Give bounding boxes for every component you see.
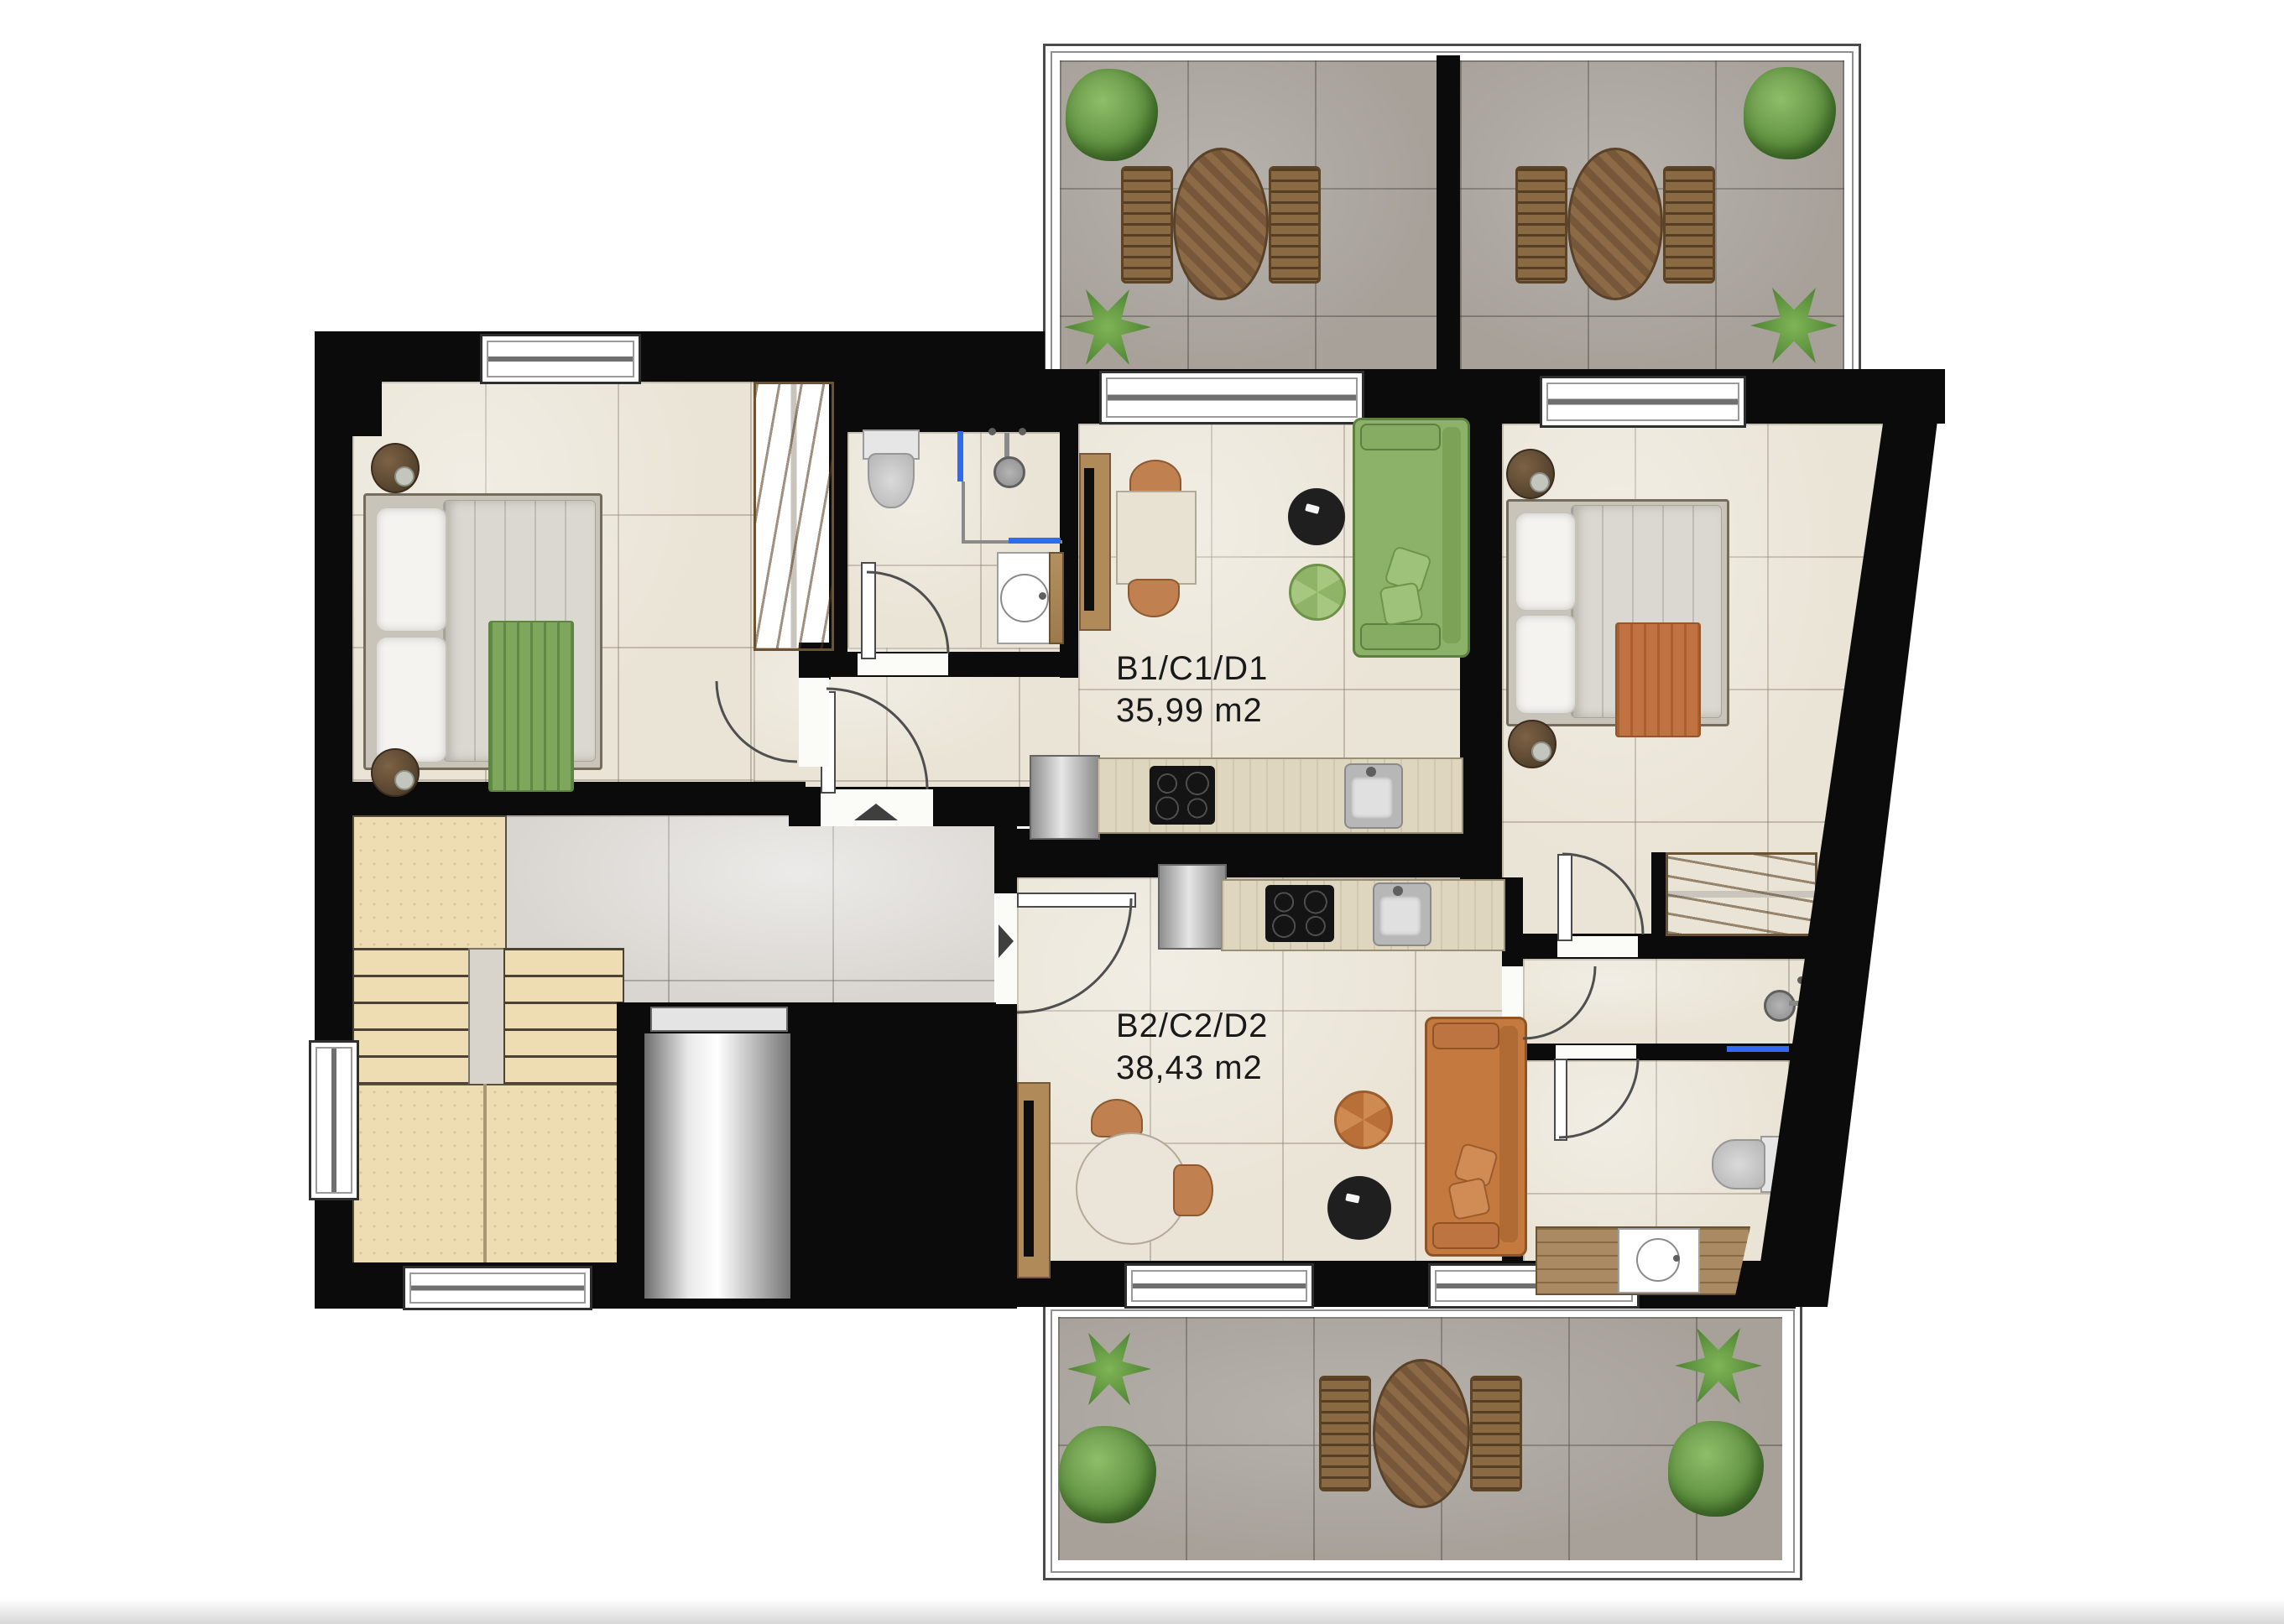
apartment2-entry-arrow	[999, 924, 1014, 958]
kitchen-counter	[1221, 879, 1505, 951]
shower-head	[1764, 990, 1796, 1022]
shower-valve	[1019, 428, 1026, 435]
stair-divider	[468, 948, 507, 1087]
cooktop	[1150, 766, 1215, 825]
toilet	[1712, 1139, 1765, 1189]
stair-flight-left	[352, 948, 472, 1086]
sink-basin	[1351, 777, 1393, 819]
floor-plan: B1/C1/D1 35,99 m2 B2/C2/D2 38,43 m2	[0, 0, 2284, 1624]
bathroom1-door	[861, 562, 876, 659]
tv	[1084, 468, 1094, 611]
shower-glass	[1727, 1046, 1789, 1052]
bathroom2-door	[1554, 1059, 1567, 1141]
shower-glass	[1009, 538, 1061, 544]
elevator	[644, 1033, 790, 1299]
bush-plant	[1744, 67, 1836, 159]
apartment2-label: B2/C2/D2 38,43 m2	[1116, 1005, 1268, 1089]
coffee-table	[1288, 488, 1345, 545]
stair-lower-landing	[352, 1084, 624, 1266]
bedroom1-window	[480, 334, 641, 384]
sofa-pillow	[1379, 581, 1423, 626]
vase	[394, 466, 415, 487]
dining-table	[1116, 491, 1197, 585]
dining-chair	[1173, 1164, 1213, 1216]
bed-throw	[1615, 622, 1701, 737]
sofa-armrest	[1360, 623, 1441, 650]
apartment2-name: B2/C2/D2	[1116, 1005, 1268, 1047]
faucet	[1039, 592, 1046, 600]
fridge	[1158, 864, 1227, 950]
sofa-backrest	[1442, 427, 1461, 643]
apartment1-name: B1/C1/D1	[1116, 648, 1268, 690]
shower-glass	[957, 431, 963, 481]
bedroom1-door-opening	[799, 678, 829, 767]
faucet	[1393, 886, 1403, 896]
shower-head	[993, 456, 1025, 488]
wall	[829, 382, 1078, 432]
pillow	[375, 507, 447, 632]
sofa-pillow	[1447, 1177, 1491, 1221]
vase	[394, 770, 415, 790]
shower-valve	[988, 428, 996, 435]
apartment2-entry-door	[1017, 893, 1136, 908]
bush-plant	[1668, 1421, 1764, 1517]
pillow	[1515, 512, 1577, 612]
vase	[1531, 742, 1551, 762]
terrace-table	[1373, 1359, 1470, 1508]
wall	[315, 331, 1045, 382]
apartment1-label: B1/C1/D1 35,99 m2	[1116, 648, 1268, 731]
terrace-divider-wall	[1437, 55, 1460, 372]
bush-plant	[1059, 1426, 1156, 1523]
dining-chair	[1091, 1099, 1143, 1137]
landing-seam	[483, 1084, 487, 1262]
terrace-table	[1567, 148, 1663, 300]
wardrobe	[754, 382, 834, 651]
sofa-armrest	[1432, 1023, 1499, 1049]
dining-table	[1076, 1132, 1188, 1245]
stairwell-side-window	[309, 1040, 359, 1200]
sofa-armrest	[1360, 424, 1441, 450]
bathroom2-door-opening	[1556, 1045, 1636, 1059]
nightstand	[1506, 449, 1555, 499]
page-edge	[0, 1599, 2284, 1624]
terrace-chair	[1269, 166, 1321, 284]
nightstand	[1508, 720, 1557, 768]
cooktop	[1265, 885, 1334, 942]
wall	[1651, 852, 1666, 934]
apartment1-terrace-window	[1099, 371, 1364, 424]
terrace-chair	[1319, 1376, 1371, 1491]
stair-flight-right	[503, 948, 624, 1086]
tv	[1024, 1101, 1034, 1257]
terrace-chair	[1663, 166, 1715, 284]
terrace-chair	[1470, 1376, 1522, 1491]
shower-valve	[1797, 976, 1805, 984]
bush-plant	[1066, 69, 1158, 161]
nightstand	[371, 443, 420, 493]
apartment1-entry-arrow	[854, 804, 898, 820]
apartment1-area: 35,99 m2	[1116, 690, 1268, 731]
wardrobe	[1666, 852, 1817, 936]
shower-arm	[1004, 433, 1009, 458]
fridge	[1030, 755, 1100, 840]
pouf	[1289, 564, 1346, 621]
faucet	[1366, 767, 1376, 777]
bedroom2-door	[1557, 854, 1572, 941]
pouf	[1334, 1090, 1393, 1149]
sofa-backrest	[1499, 1026, 1518, 1242]
sofa	[1425, 1017, 1527, 1257]
sink-counter-wood	[1049, 552, 1064, 644]
pillow	[375, 636, 447, 763]
apartment2-area: 38,43 m2	[1116, 1047, 1268, 1089]
terrace-chair	[1515, 166, 1567, 284]
shower-valve	[1797, 1027, 1805, 1034]
pillow	[1515, 614, 1577, 715]
terrace-chair	[1121, 166, 1173, 284]
apartment2-terrace-window-1	[1124, 1263, 1314, 1309]
faucet	[1673, 1255, 1680, 1262]
bed-throw	[488, 621, 574, 792]
stairwell-window	[403, 1266, 592, 1310]
stair-upper-landing	[352, 815, 507, 951]
shower-arm	[1789, 1001, 1806, 1006]
elevator-door	[650, 1007, 788, 1032]
sofa	[1353, 418, 1470, 658]
vase	[1530, 472, 1550, 492]
wall	[315, 382, 382, 436]
sofa-armrest	[1432, 1222, 1499, 1249]
shower-pipe	[962, 481, 965, 542]
terrace-table	[1173, 148, 1269, 300]
sink-basin	[1379, 896, 1421, 936]
tv-sideboard	[1017, 1082, 1051, 1278]
nightstand	[371, 748, 420, 797]
coffee-table	[1327, 1176, 1391, 1240]
bedroom2-window	[1540, 376, 1746, 428]
